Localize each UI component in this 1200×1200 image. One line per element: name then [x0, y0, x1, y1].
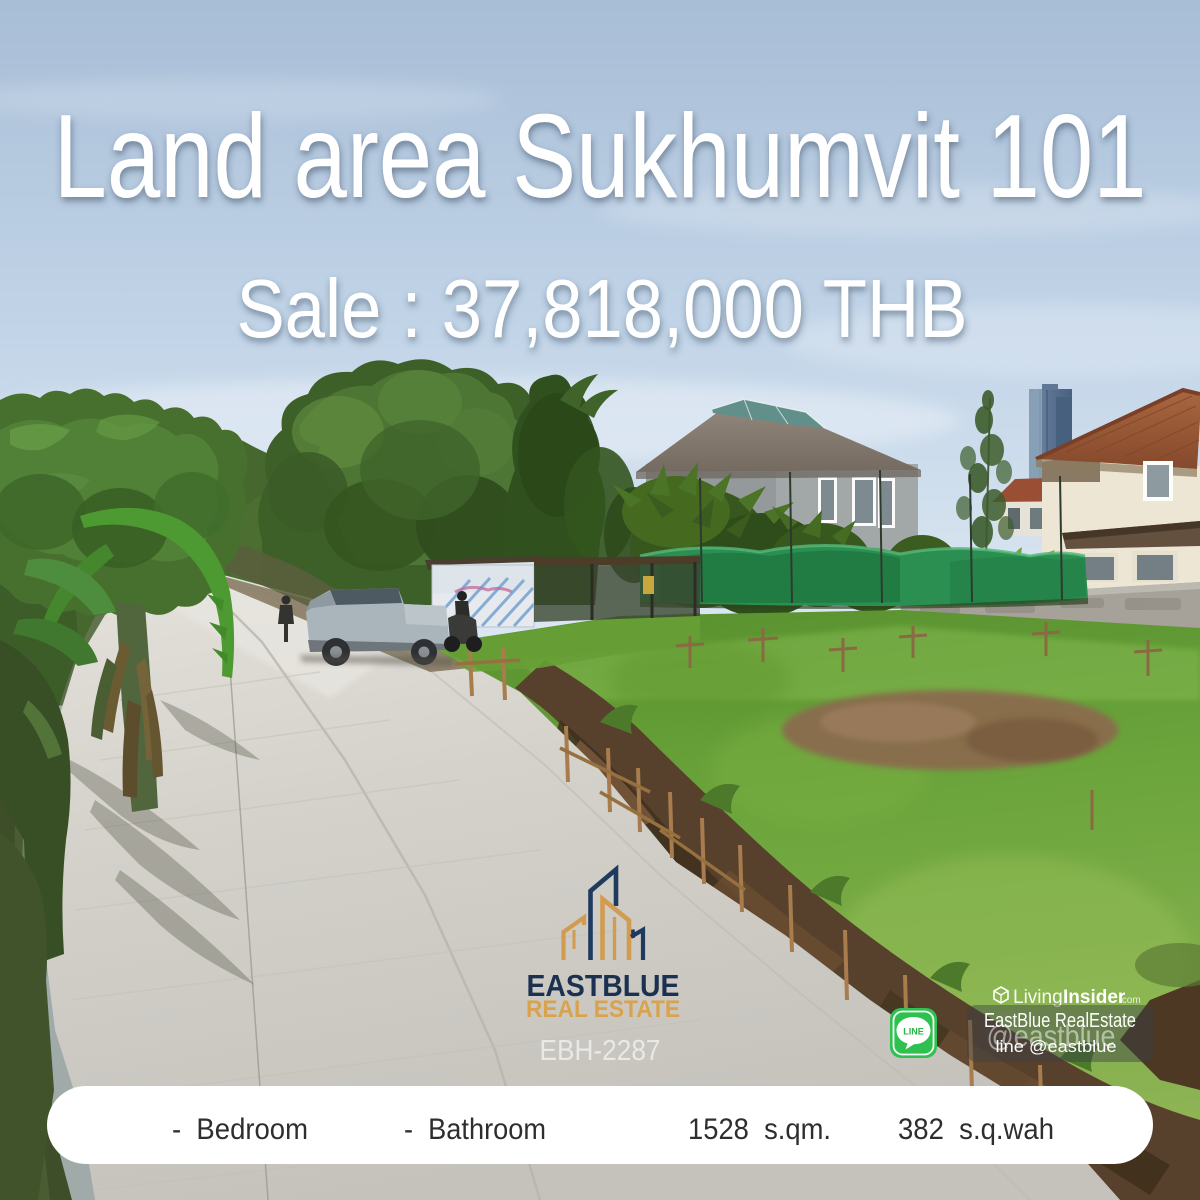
svg-text:line @eastblue: line @eastblue	[996, 1037, 1117, 1056]
svg-text:.com: .com	[1119, 995, 1141, 1006]
svg-text:Living: Living	[1013, 987, 1063, 1008]
svg-text:382 s.q.wah: 382 s.q.wah	[898, 1113, 1054, 1146]
svg-text:EBH-2287: EBH-2287	[540, 1035, 661, 1067]
svg-text:1528 s.qm.: 1528 s.qm.	[688, 1113, 831, 1146]
svg-text:- Bedroom: - Bedroom	[172, 1113, 308, 1146]
svg-text:Insider: Insider	[1063, 987, 1126, 1008]
svg-text:REAL ESTATE: REAL ESTATE	[526, 996, 680, 1023]
svg-text:LINE: LINE	[903, 1027, 924, 1037]
svg-text:Land area Sukhumvit 101: Land area Sukhumvit 101	[54, 90, 1147, 223]
svg-text:Sale : 37,818,000 THB: Sale : 37,818,000 THB	[237, 262, 968, 355]
svg-text:- Bathroom: - Bathroom	[404, 1113, 546, 1146]
